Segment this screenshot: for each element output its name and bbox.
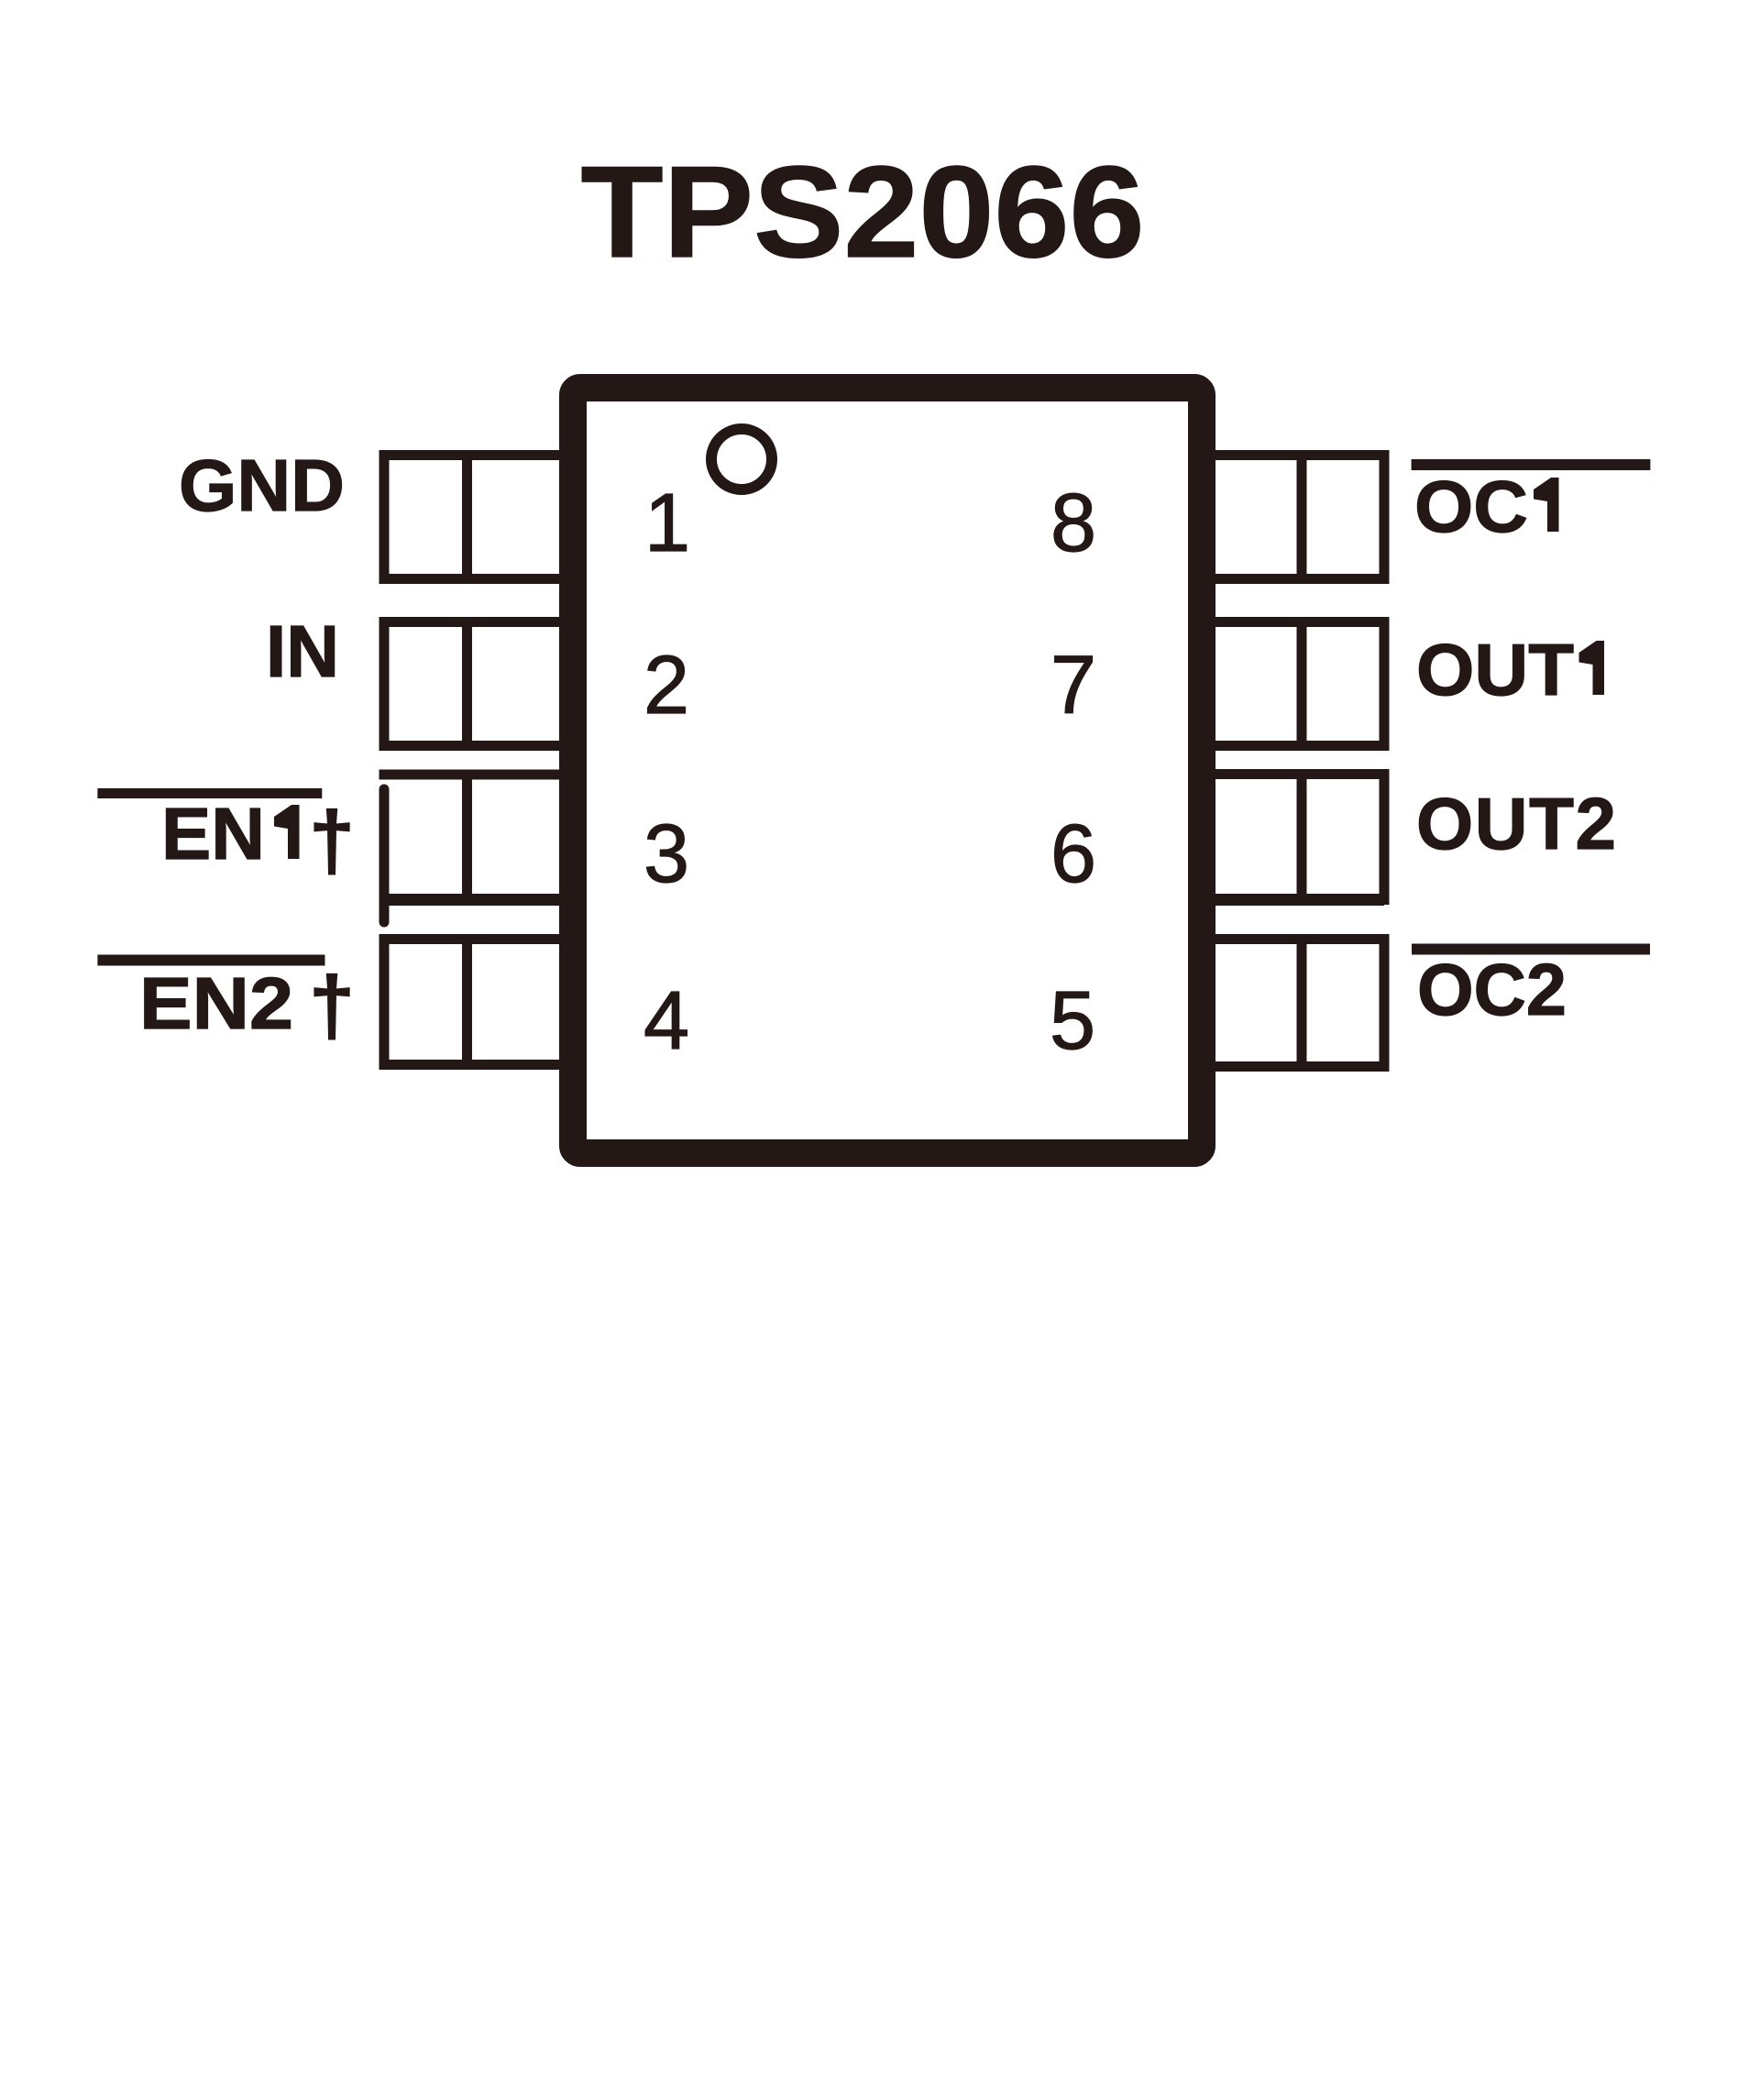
svg-text:3: 3	[643, 808, 689, 900]
svg-text:OUT: OUT	[1416, 629, 1574, 710]
svg-text:OC2: OC2	[1417, 949, 1567, 1030]
svg-text:EN: EN	[161, 793, 265, 874]
svg-text:OUT2: OUT2	[1416, 783, 1616, 864]
svg-text:2: 2	[643, 640, 689, 731]
svg-text:4: 4	[643, 975, 689, 1067]
svg-text:IN: IN	[266, 610, 339, 692]
svg-text:OC: OC	[1414, 466, 1528, 547]
svg-text:GND: GND	[179, 445, 345, 526]
svg-text:†: †	[309, 796, 355, 887]
svg-text:8: 8	[1050, 478, 1096, 569]
svg-text:EN2: EN2	[139, 962, 293, 1044]
svg-text:6: 6	[1050, 808, 1096, 900]
svg-text:1: 1	[644, 478, 690, 569]
svg-text:7: 7	[1050, 640, 1096, 731]
svg-text:TPS2066: TPS2066	[581, 139, 1145, 285]
svg-text:†: †	[309, 961, 355, 1052]
svg-text:5: 5	[1050, 975, 1095, 1067]
